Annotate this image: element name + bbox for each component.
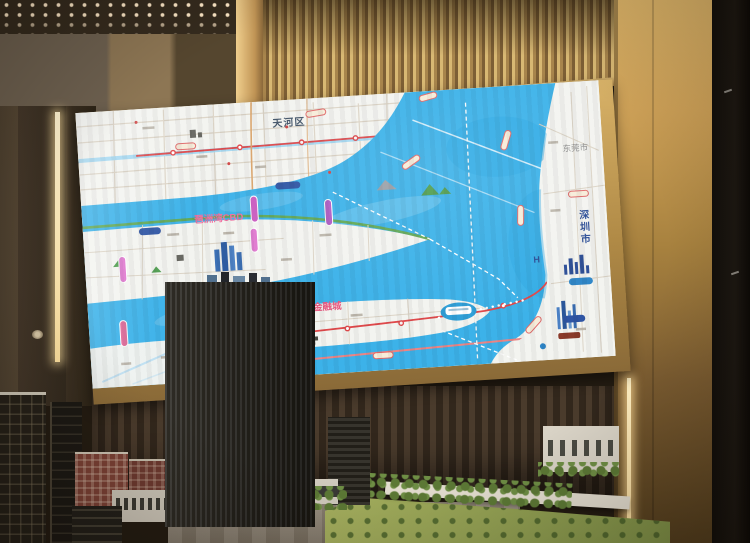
dark-right-wall [712,0,750,543]
financial-city-label: 国际金融城 [294,298,342,315]
wall-lamp [32,330,43,339]
shenzhen-label: 深圳市 [574,209,591,246]
dongguan-label: 东莞市 [562,141,588,155]
model-dark-podium [72,506,122,543]
led-strip-left [55,112,60,362]
lit-corner-column [236,0,263,118]
model-left-tower [0,392,46,543]
model-plaza [168,502,520,543]
right-column-seam [652,0,654,543]
district-label-tianhe: 天河区 [272,113,306,130]
hospital-marker: H [533,254,540,264]
led-strip-right [627,378,631,543]
glass-reflection [724,89,732,94]
map-graphic [75,80,615,388]
showroom-photo: 天河区 琶洲湾CBD 国际金融城 东莞市 深圳市 H [0,0,750,543]
glass-reflection [731,271,739,276]
model-window-band [116,498,166,510]
lower-slat-wall [92,386,617,496]
screen-gold-frame: 天河区 琶洲湾CBD 国际金融城 东莞市 深圳市 H [75,79,630,404]
model-left-tower-2 [50,402,82,543]
led-map-screen: 天河区 琶洲湾CBD 国际金融城 东莞市 深圳市 H [75,80,615,388]
